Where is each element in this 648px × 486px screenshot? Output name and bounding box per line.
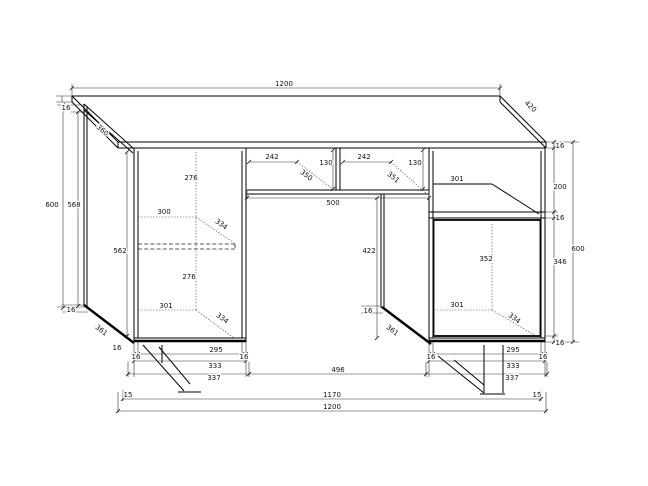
dim-label-left-bottom-inner-width: 301 [159,302,172,310]
dim-label-left-pedestal-outer-width: 337 [207,374,220,382]
dim-label-drawer-right-width: 242 [357,153,370,161]
dim-label-left-shelf-depth-lower: 334 [214,311,230,326]
dim-label-desktop-thickness-right: 16 [556,142,565,150]
dim-label-left-plinth-left-thickness: 16 [132,353,141,361]
dim-label-height-overall-left: 600 [45,201,58,209]
dim-label-right-bottom-thickness: 16 [556,339,565,347]
dim-label-middle-opening-height: 422 [362,247,375,255]
dim-label-right-pedestal-width: 333 [506,362,519,370]
desk-drawing-page: 1200420163601660056827630033456227630133… [0,0,648,486]
dim-label-niche-height: 200 [553,183,566,191]
dimension-labels: 1200420163601660056827630033456227630133… [45,80,584,411]
dim-label-right-shelf-depth: 334 [506,311,522,326]
dim-label-right-shelf-thickness: 16 [556,214,565,222]
dim-label-left-pedestal-width: 333 [208,362,221,370]
dim-label-right-plinth-left-thickness: 16 [427,353,436,361]
dim-label-foot-inset-right: 15 [533,391,542,399]
dim-label-left-shelf-depth-upper: 334 [213,217,229,232]
dim-label-drawer-right-depth: 351 [385,170,400,185]
dim-label-side-panel-height-left: 568 [67,201,80,209]
dim-label-left-panel-bottom-depth: 361 [93,323,108,338]
dim-label-desktop-thickness-left: 16 [62,104,71,112]
dim-label-top-width: 1200 [275,80,293,88]
desk-outline [72,96,546,394]
dim-label-bottom-overall-width: 1200 [323,403,341,411]
dim-label-right-cabinet-inner-width: 301 [450,301,463,309]
left-shelf-dashed [138,244,235,249]
dim-label-left-panel-bottom-thickness: 16 [67,306,76,314]
dim-label-desktop-depth: 420 [523,99,538,114]
dim-label-drawer-right-height: 130 [408,159,421,167]
dim-label-left-panel-front-thickness: 16 [113,344,122,352]
dim-label-middle-gap-width: 496 [331,366,345,374]
dim-label-left-shelf-width: 300 [157,208,170,216]
dim-label-right-pedestal-outer-width: 337 [505,374,518,382]
right-cabinet-door [434,220,541,336]
dim-label-foot-inset-left: 15 [124,391,133,399]
hidden-detail-lines [138,152,536,338]
dim-label-drawer-left-depth: 350 [298,168,313,183]
dim-label-right-panel-bottom-thickness: 16 [364,307,373,315]
dim-label-left-plinth-width: 295 [209,346,222,354]
dim-label-left-upper-space-height: 276 [184,174,198,182]
dim-label-drawer-left-width: 242 [265,153,278,161]
dim-label-left-inner-height: 562 [113,247,126,255]
dim-label-right-plinth-width: 295 [506,346,519,354]
dim-label-height-overall-right: 600 [571,245,584,253]
dim-label-drawer-middle-height: 130 [319,159,332,167]
dim-label-right-panel-bottom-depth: 361 [384,323,399,338]
dim-label-right-cabinet-height: 346 [553,258,567,266]
dim-label-left-plinth-right-thickness: 16 [240,353,249,361]
dim-label-niche-width: 301 [450,175,463,183]
dim-label-middle-opening-width: 500 [326,199,339,207]
dim-label-right-cabinet-inner-height: 352 [479,255,492,263]
desk-technical-drawing: 1200420163601660056827630033456227630133… [0,0,648,486]
dim-label-feet-span: 1170 [323,391,341,399]
dim-label-right-plinth-right-thickness: 16 [539,353,548,361]
dim-label-left-lower-space-height: 276 [182,273,196,281]
